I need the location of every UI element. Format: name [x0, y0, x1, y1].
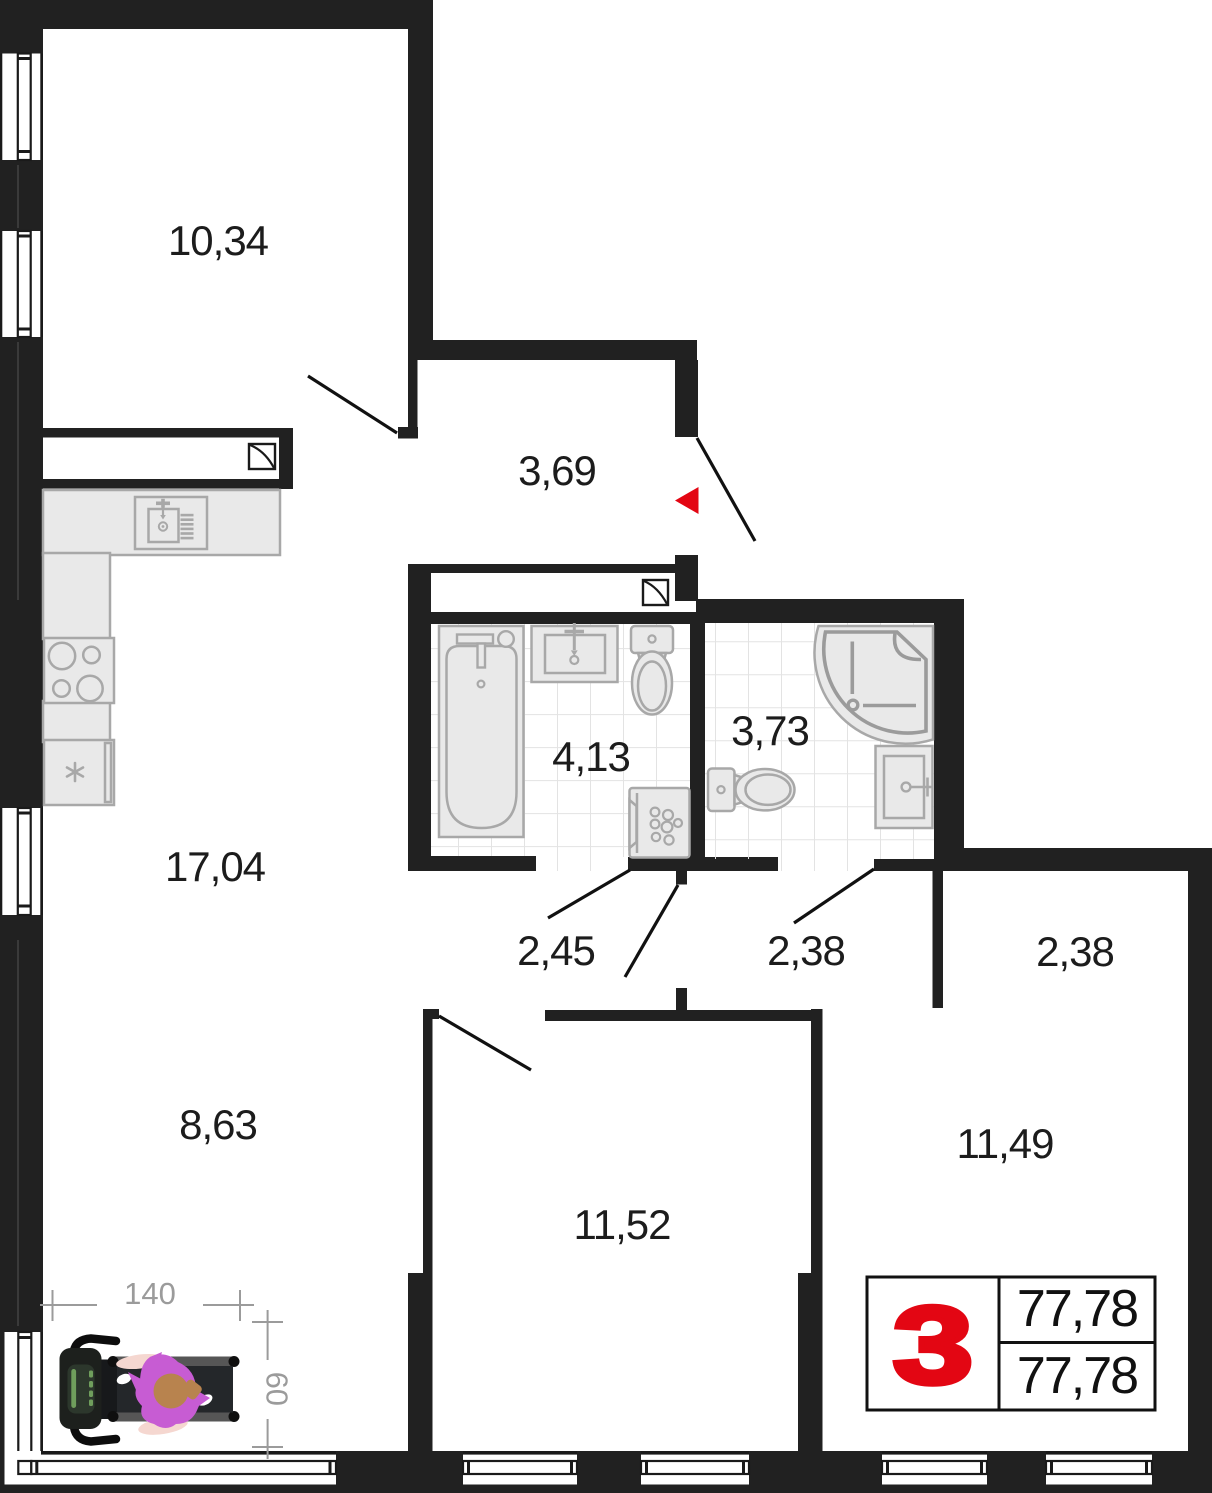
svg-text:3,73: 3,73: [731, 707, 809, 754]
svg-text:8,63: 8,63: [179, 1101, 257, 1148]
svg-text:77,78: 77,78: [1017, 1347, 1137, 1405]
svg-text:2,38: 2,38: [767, 927, 845, 974]
svg-text:11,52: 11,52: [574, 1201, 671, 1248]
svg-text:10,34: 10,34: [168, 217, 269, 264]
svg-text:11,49: 11,49: [957, 1120, 1054, 1167]
svg-text:17,04: 17,04: [165, 843, 266, 890]
svg-text:3,69: 3,69: [518, 447, 596, 494]
svg-text:77,78: 77,78: [1017, 1280, 1137, 1338]
svg-text:4,13: 4,13: [552, 733, 630, 780]
svg-text:2,38: 2,38: [1036, 928, 1114, 975]
svg-text:2,45: 2,45: [517, 927, 595, 974]
svg-text:140: 140: [124, 1276, 176, 1311]
svg-text:3: 3: [893, 1284, 974, 1407]
svg-text:60: 60: [260, 1372, 295, 1406]
